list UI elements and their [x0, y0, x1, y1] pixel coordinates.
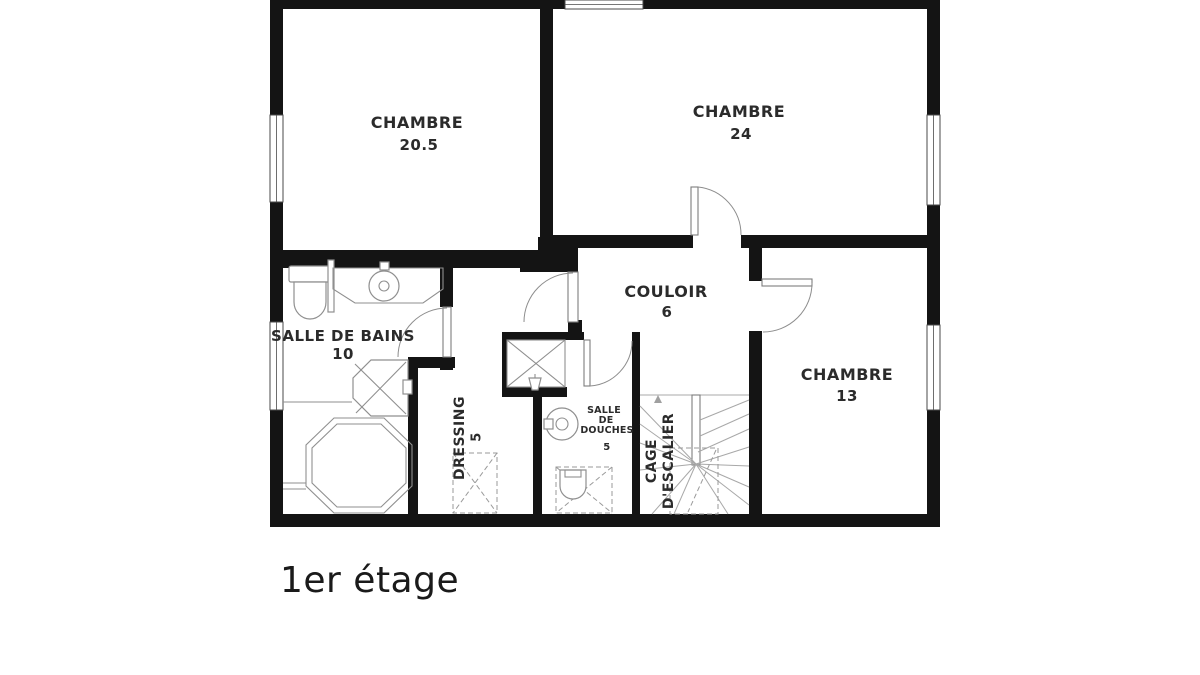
- corner-cabinet-icon: [353, 360, 412, 416]
- bathroom-fixtures: [283, 260, 443, 513]
- label-chambre-1: CHAMBRE: [371, 113, 463, 132]
- door-chambre24: [691, 187, 741, 235]
- label-chambre-2-area: 24: [730, 125, 752, 143]
- door-salle-de-douches: [584, 340, 632, 386]
- label-salle-de-bains-area: 10: [332, 345, 354, 363]
- toilet-icon: [289, 266, 331, 319]
- window-top: [565, 0, 643, 9]
- label-chambre-1-area: 20.5: [399, 136, 438, 154]
- floor-title: 1er étage: [280, 560, 459, 601]
- label-douches-line3: DOUCHES: [580, 425, 633, 436]
- shower-room-sink-icon: [544, 408, 578, 440]
- window-right-chambre24: [927, 115, 940, 205]
- washbasin-icon: [333, 262, 443, 303]
- label-cage-line2: D'ESCALIER: [661, 413, 677, 509]
- label-chambre-3-area: 13: [836, 387, 858, 405]
- label-couloir-area: 6: [662, 303, 673, 321]
- floor-plan-drawing: CHAMBRE 20.5 CHAMBRE 24 CHAMBRE 13 SALLE…: [0, 0, 1200, 675]
- windows: [270, 0, 940, 410]
- label-douches-area: 5: [603, 442, 610, 453]
- label-couloir: COULOIR: [624, 282, 707, 301]
- shower-stall-icon: [507, 340, 565, 390]
- room-labels: CHAMBRE 20.5 CHAMBRE 24 CHAMBRE 13 SALLE…: [271, 102, 893, 509]
- stair-direction-arrow-icon: [654, 395, 662, 403]
- door-couloir-hall: [524, 272, 578, 322]
- label-dressing-area: 5: [470, 432, 485, 442]
- label-chambre-2: CHAMBRE: [693, 102, 785, 121]
- label-cage-line1: CAGE: [644, 439, 660, 483]
- label-salle-de-bains: SALLE DE BAINS: [271, 327, 415, 345]
- floor-plan-page: CHAMBRE 20.5 CHAMBRE 24 CHAMBRE 13 SALLE…: [0, 0, 1200, 675]
- bathtub-icon: [283, 402, 412, 513]
- shower-room-wc-icon: [556, 467, 612, 513]
- label-dressing: DRESSING: [452, 396, 468, 480]
- door-chambre13: [762, 279, 812, 332]
- label-chambre-3: CHAMBRE: [801, 365, 893, 384]
- window-left-bedroom: [270, 115, 283, 202]
- window-right-chambre13: [927, 325, 940, 410]
